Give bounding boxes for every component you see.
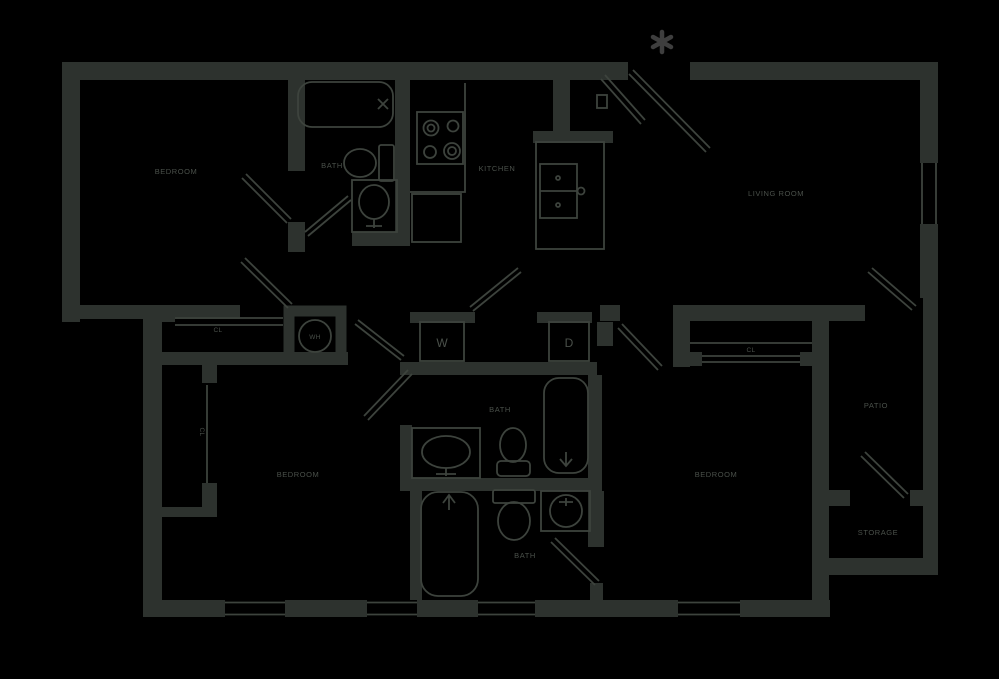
kitchen-island-sink-icon (536, 142, 604, 249)
label-dryer: D (565, 336, 574, 350)
fixture-labels: CL WH CL CL W D (198, 327, 756, 437)
sink-icon (352, 180, 397, 232)
label-closet-hall: CL (214, 327, 223, 334)
label-washer: W (436, 336, 448, 350)
toilet-icon (344, 145, 394, 181)
toilet-icon (497, 428, 530, 476)
stove-icon (417, 112, 463, 164)
label-bath-middle: BATH (489, 405, 511, 414)
label-bedroom-bottom-right: BEDROOM (695, 470, 738, 479)
kitchen-counter (410, 83, 465, 192)
label-closet-bedroom-right: CL (747, 347, 756, 354)
refrigerator-icon (412, 194, 461, 242)
label-storage: STORAGE (858, 528, 898, 537)
label-bath-top: BATH (321, 161, 343, 170)
label-living-room: LIVING ROOM (748, 189, 804, 198)
walls (62, 62, 938, 617)
label-bedroom-bottom-left: BEDROOM (277, 470, 320, 479)
toilet-icon (493, 490, 535, 540)
label-closet-bedroom-left: CL (198, 428, 205, 437)
bathtub-icon (421, 492, 478, 596)
label-kitchen: KITCHEN (479, 164, 516, 173)
floor-plan-page: BEDROOM BATH KITCHEN LIVING ROOM BEDROOM… (0, 0, 999, 679)
floor-plan: BEDROOM BATH KITCHEN LIVING ROOM BEDROOM… (0, 0, 999, 679)
sink-icon (541, 491, 590, 531)
label-bedroom-top-left: BEDROOM (155, 167, 198, 176)
shower-tub-icon (544, 378, 588, 473)
sink-icon (412, 428, 480, 478)
label-patio: PATIO (864, 401, 888, 410)
bathtub-icon (298, 82, 393, 127)
entry-asterisk-icon (653, 32, 671, 52)
label-water-heater: WH (309, 334, 320, 341)
label-bath-bottom: BATH (514, 551, 536, 560)
windows (225, 163, 936, 615)
